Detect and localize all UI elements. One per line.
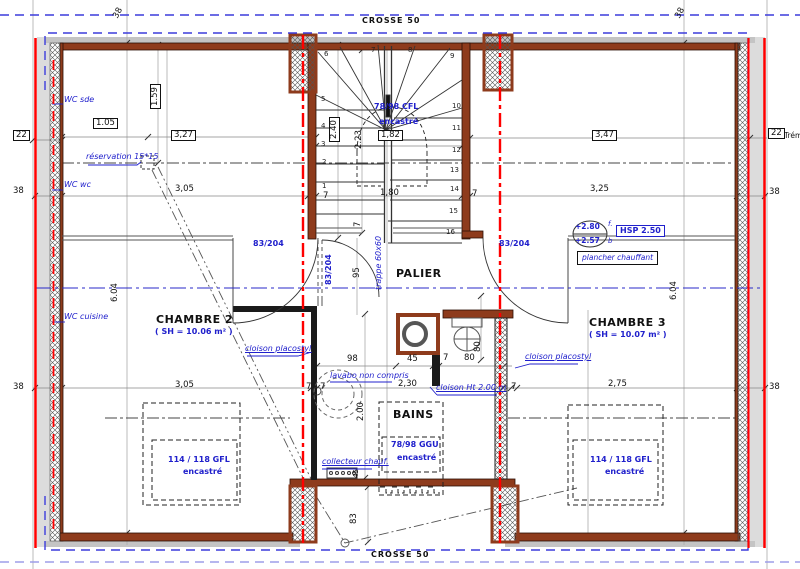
window-gfl-left-label: 114 / 118 GFL xyxy=(168,456,230,464)
window-gfl-left-sub: encastré xyxy=(183,468,222,476)
dim-2-75: 2,75 xyxy=(608,380,627,389)
room-chambre3-label: CHAMBRE 3 xyxy=(589,317,666,328)
dim-7-lavabo: 7 xyxy=(306,383,311,392)
dimension-ticks xyxy=(30,40,768,545)
stair-step-4: 4 xyxy=(321,123,325,130)
dim-1-59: 1.59 xyxy=(150,84,161,109)
door-right-label: 83/204 xyxy=(499,240,530,248)
dim-7-stair-left: 7 xyxy=(323,192,328,201)
hsp-label: HSP 2.50 xyxy=(616,225,665,237)
stair-step-16: 16 xyxy=(446,229,455,236)
dim-83: 83 xyxy=(350,513,359,524)
stair-step-5: 5 xyxy=(321,96,325,103)
stair-step-13: 13 xyxy=(450,167,459,174)
window-gfl-right-sub: encastré xyxy=(605,468,644,476)
dim-3-47: 3,47 xyxy=(592,130,617,141)
duct-wc-wc-label: WC wc xyxy=(64,181,91,189)
dim-98: 98 xyxy=(347,355,358,364)
dim-7-stair-right: 7 xyxy=(472,190,477,199)
tremie-label: Trém xyxy=(784,132,800,140)
dim-3-27: 3,27 xyxy=(171,130,196,141)
duct-wc-cuisine-label: WC cuisine xyxy=(64,313,108,321)
level-upper-suffix: f. xyxy=(608,221,613,228)
cloison-ht-label: cloison Ht 2.00 m xyxy=(436,384,506,392)
stair-step-11: 11 xyxy=(452,125,461,132)
dim-38-left-upper: 38 xyxy=(13,187,24,196)
level-lower: +2.57 xyxy=(575,237,600,245)
trappe-label: trappe 60x60 xyxy=(375,236,383,290)
dim-95: 95 xyxy=(353,267,362,278)
dim-80-h: 80 xyxy=(464,354,475,363)
dim-45-v: 45 xyxy=(353,469,360,478)
stair-step-6: 6 xyxy=(324,51,328,58)
dim-3-05-lower: 3,05 xyxy=(175,381,194,390)
stair-step-10: 10 xyxy=(452,103,461,110)
dim-7-cloison-right: 7 xyxy=(511,383,516,392)
dim-2-00: 2.00 xyxy=(357,402,366,421)
stair-step-15: 15 xyxy=(449,208,458,215)
dim-3-05-upper: 3,05 xyxy=(175,185,194,194)
stair-step-2: 2 xyxy=(322,159,326,166)
dim-2-40: 2.40 xyxy=(329,117,340,142)
floor-plan: CROSSE 50 CROSSE 50 38 38 22 22 Trém WC … xyxy=(0,0,800,569)
cloison-right-label: cloison placostyl xyxy=(525,353,591,361)
dim-7-cloison-left: 7 xyxy=(320,383,325,392)
reservation-label: réservation 15*15 xyxy=(86,153,158,161)
roof-eave-bands xyxy=(37,37,765,547)
dim-22-left: 22 xyxy=(13,130,30,141)
room-chambre2-label: CHAMBRE 2 xyxy=(156,314,233,325)
room-palier-label: PALIER xyxy=(396,268,442,279)
room-chambre3-area: ( SH = 10.07 m² ) xyxy=(589,331,667,339)
flue-pipe xyxy=(404,323,426,345)
dim-80-v: 80 xyxy=(474,341,483,352)
crosse-top-label: CROSSE 50 xyxy=(362,17,420,25)
door-left-label: 83/204 xyxy=(253,240,284,248)
window-cfl-label: 78/98 CFL xyxy=(374,103,418,111)
stair-step-14: 14 xyxy=(450,186,459,193)
lavabo-label: lavabo non compris xyxy=(330,372,409,380)
plancher-chauffant-label: plancher chauffant xyxy=(577,251,658,265)
collecteur-label: collecteur chauf. xyxy=(322,458,389,466)
room-bains-label: BAINS xyxy=(393,409,434,420)
dim-45: 45 xyxy=(407,355,418,364)
plan-drawing xyxy=(0,0,800,569)
dim-6-04-left: 6.04 xyxy=(111,283,120,302)
dim-22-right: 22 xyxy=(768,128,785,139)
dim-1-05: 1.05 xyxy=(93,118,118,129)
dim-38-right-upper: 38 xyxy=(769,188,780,197)
dim-1-82: 1,82 xyxy=(378,130,403,141)
door-center-label: 83/204 xyxy=(325,254,333,285)
stair-step-9: 9 xyxy=(450,53,454,60)
stair-step-8: 8 xyxy=(408,47,412,54)
stair-step-7: 7 xyxy=(371,47,375,54)
dim-7-trappe: 7 xyxy=(354,222,363,227)
window-cfl-sub: encastré xyxy=(379,118,418,126)
window-ggu-label: 78/98 GGU xyxy=(391,441,439,449)
dim-7-bains: 7 xyxy=(443,354,448,363)
cloison-left-label: cloison placostyl xyxy=(245,345,311,353)
window-gfl-right-label: 114 / 118 GFL xyxy=(590,456,652,464)
dim-1-80: 1,80 xyxy=(380,189,399,198)
stair-step-1: 1 xyxy=(322,183,326,190)
stair-step-12: 12 xyxy=(452,147,461,154)
dim-6-04-right: 6.04 xyxy=(670,281,679,300)
level-upper: +2.80 xyxy=(575,223,600,231)
room-chambre2-area: ( SH = 10.06 m² ) xyxy=(155,328,233,336)
stair-step-3: 3 xyxy=(321,141,325,148)
dim-2-30: 2,30 xyxy=(398,380,417,389)
duct-wc-sde-label: WC sde xyxy=(64,96,94,104)
dim-38-right-lower: 38 xyxy=(769,383,780,392)
dim-3-25: 3,25 xyxy=(590,185,609,194)
dim-2-23: 2.23 xyxy=(355,130,364,149)
crosse-bottom-label: CROSSE 50 xyxy=(371,551,429,559)
level-lower-suffix: b xyxy=(608,238,612,245)
window-ggu-sub: encastré xyxy=(397,454,436,462)
dim-38-left-lower: 38 xyxy=(13,383,24,392)
